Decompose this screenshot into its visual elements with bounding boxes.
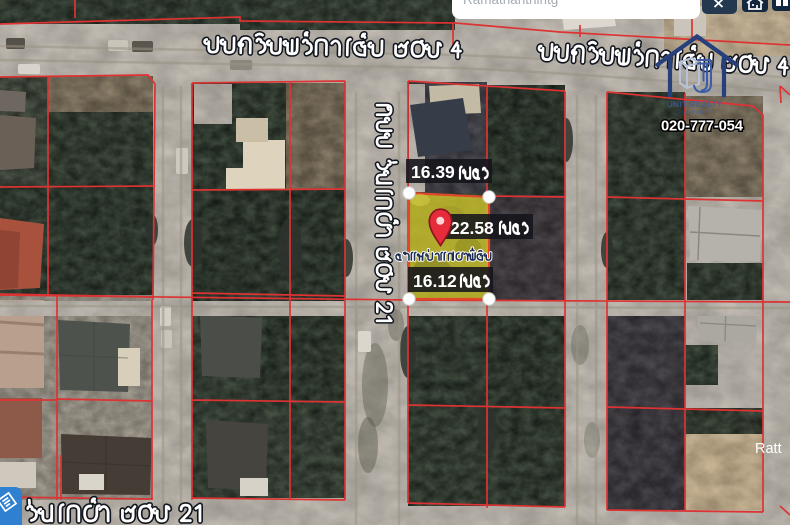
svg-text:16.39: 16.39 bbox=[411, 162, 455, 182]
svg-text:Ratt: Ratt bbox=[755, 441, 782, 457]
svg-text:UNIT REALTY: UNIT REALTY bbox=[667, 100, 723, 109]
svg-text:16.12: 16.12 bbox=[413, 271, 457, 291]
svg-text:Ramathanthiritg: Ramathanthiritg bbox=[463, 0, 558, 7]
svg-text:020-777-054: 020-777-054 bbox=[661, 119, 744, 135]
svg-text:PROPERTY: PROPERTY bbox=[678, 110, 712, 116]
svg-text:22.58: 22.58 bbox=[450, 218, 494, 238]
